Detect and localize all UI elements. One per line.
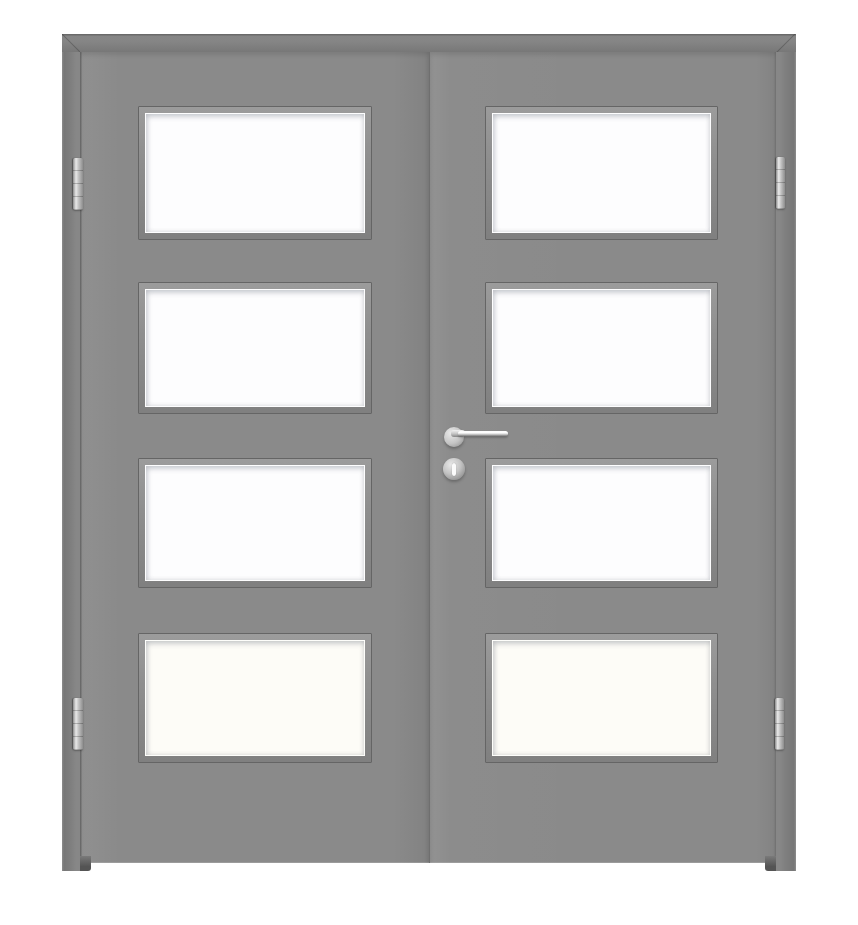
door-leaf-right (429, 52, 776, 863)
product-photo (0, 0, 858, 925)
glazing-bead (485, 282, 718, 414)
door-leaf-left (80, 52, 429, 863)
glass-lite (145, 465, 365, 581)
hinge-right-bottom (775, 698, 784, 750)
glazing-bead (485, 633, 718, 763)
hinge-left-top (73, 158, 83, 210)
bottom-shadow-notch-right (765, 856, 776, 871)
glazing-bead (138, 633, 372, 763)
glazing-bead (485, 458, 718, 588)
glazing-bead (138, 282, 372, 414)
glass-lite (492, 113, 711, 233)
door-frame-head (62, 34, 796, 52)
hinge-left-bottom (73, 698, 83, 750)
keyhole-icon (452, 463, 456, 476)
glazing-bead (138, 458, 372, 588)
glazing-bead (138, 106, 372, 240)
lever-handle (458, 431, 508, 436)
glass-lite (492, 640, 711, 756)
glass-lite (492, 289, 711, 407)
bottom-shadow-notch-left (80, 856, 91, 871)
glazing-bead (485, 106, 718, 240)
glass-lite (145, 289, 365, 407)
glass-lite (492, 465, 711, 581)
glass-lite (145, 640, 365, 756)
hinge-right-top (776, 157, 785, 209)
glass-lite (145, 113, 365, 233)
